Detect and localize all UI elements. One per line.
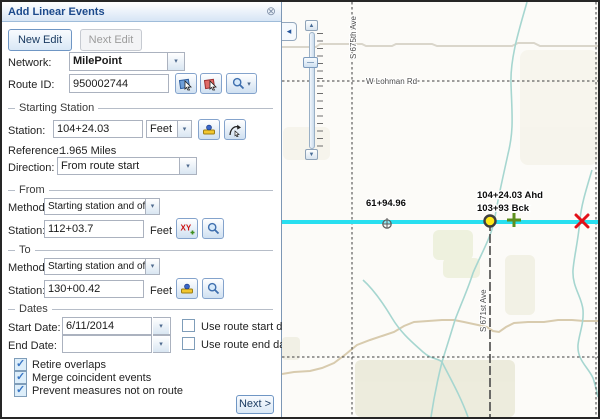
starting-station-label: Station:	[8, 125, 45, 137]
map-view[interactable]: W Lohman Rd S 675th Ave S 671st Ave 61+9…	[282, 2, 598, 417]
from-method-value: Starting station and offset	[45, 199, 145, 214]
start-date-input[interactable]	[62, 317, 152, 335]
xy-plus-icon: XY	[180, 222, 195, 236]
zoom-slider-ticks	[317, 33, 323, 148]
station-measure-label: 61+94.96	[366, 198, 406, 209]
collapse-panel-button[interactable]: ◂	[282, 22, 297, 41]
units-dropdown-trigger[interactable]: ▾	[177, 121, 191, 137]
check-icon: ✓	[16, 383, 25, 396]
from-units-label: Feet	[150, 225, 172, 237]
from-station-label: Station:	[8, 225, 45, 237]
from-legend: From	[19, 184, 45, 196]
starting-station-legend: Starting Station	[19, 102, 94, 114]
new-edit-button[interactable]: New Edit	[8, 29, 72, 51]
collapse-left-icon: ◂	[287, 27, 292, 36]
arrow-up-icon: ▲	[309, 23, 315, 29]
to-method-value: Starting station and offset	[45, 259, 145, 274]
select-route-on-map-button[interactable]	[175, 73, 197, 94]
dates-legend: Dates	[19, 303, 48, 315]
application-content: Add Linear Events ⊗ New Edit Next Edit N…	[2, 2, 598, 417]
dates-section-header: Dates	[8, 303, 273, 315]
close-icon[interactable]: ⊗	[266, 4, 276, 18]
from-xy-coordinate-button[interactable]: XY	[176, 218, 198, 239]
land-patches	[282, 50, 598, 417]
caret-down-icon: ▾	[247, 80, 251, 88]
end-date-trigger[interactable]: ▾	[153, 336, 169, 352]
station-measure-tool-button[interactable]	[198, 119, 220, 140]
from-section-header: From	[8, 184, 273, 196]
to-station-label: Station:	[8, 285, 45, 297]
direction-value: From route start	[58, 158, 179, 174]
zoom-in-button[interactable]: ▲	[305, 20, 318, 31]
to-legend: To	[19, 244, 31, 256]
network-dropdown-trigger[interactable]: ▾	[167, 53, 184, 70]
magnifier-icon	[207, 222, 220, 235]
network-value: MilePoint	[70, 53, 167, 70]
to-zoom-button[interactable]	[202, 278, 224, 299]
end-date-input[interactable]	[62, 335, 152, 353]
arrow-down-icon: ▼	[309, 152, 315, 158]
route-id-label: Route ID:	[8, 79, 54, 91]
route-zoom-menu-button[interactable]: ▾	[226, 73, 257, 94]
caret-down-icon: ▾	[174, 58, 178, 65]
to-units-label: Feet	[150, 285, 172, 297]
select-route-blue-icon	[179, 77, 193, 91]
road-label-s675: S 675th Ave	[349, 15, 358, 59]
start-date-label: Start Date:	[8, 322, 61, 334]
back-measure-label: 103+93 Bck	[477, 203, 530, 214]
pick-station-from-map-button[interactable]	[224, 119, 246, 140]
to-station-measure-tool-button[interactable]	[176, 278, 198, 299]
prevent-measures-label: Prevent measures not on route	[32, 385, 183, 397]
panel-title: Add Linear Events	[8, 6, 105, 18]
from-station-input[interactable]	[44, 220, 144, 238]
svg-text:XY: XY	[180, 223, 191, 232]
direction-dropdown-trigger[interactable]: ▾	[179, 158, 196, 174]
magnifier-icon	[207, 282, 220, 295]
caret-down-icon: ▾	[151, 203, 155, 210]
zoom-slider-track[interactable]	[309, 32, 315, 149]
to-method-combo[interactable]: Starting station and offset ▾	[44, 258, 160, 275]
add-linear-events-panel: Add Linear Events ⊗ New Edit Next Edit N…	[2, 2, 282, 417]
to-station-input[interactable]	[44, 280, 144, 298]
clear-route-selection-button[interactable]	[200, 73, 222, 94]
caret-down-icon: ▾	[159, 323, 163, 330]
network-combo[interactable]: MilePoint ▾	[69, 52, 185, 71]
magnifier-icon	[232, 77, 245, 90]
end-date-label: End Date:	[8, 340, 57, 352]
to-method-label: Method:	[8, 262, 48, 274]
check-icon: ✓	[16, 357, 25, 370]
pick-arrow-icon	[228, 123, 242, 137]
start-date-trigger[interactable]: ▾	[153, 318, 169, 334]
starting-station-input[interactable]	[53, 120, 143, 138]
merge-coincident-events-label: Merge coincident events	[32, 372, 151, 384]
selected-point-marker[interactable]	[485, 216, 496, 227]
from-method-dropdown-trigger[interactable]: ▾	[145, 199, 159, 214]
caret-down-icon: ▾	[151, 263, 155, 270]
next-button[interactable]: Next >	[236, 395, 274, 414]
ahead-measure-label: 104+24.03 Ahd	[477, 190, 543, 201]
starting-station-units-combo[interactable]: Feet ▾	[146, 120, 192, 138]
to-section-header: To	[8, 244, 273, 256]
caret-down-icon: ▾	[159, 341, 163, 348]
starting-station-section-header: Starting Station	[8, 102, 273, 114]
station-reference-marker[interactable]	[383, 218, 391, 228]
caret-down-icon: ▾	[183, 126, 187, 133]
prevent-measures-checkbox[interactable]: ✓	[14, 384, 27, 397]
use-route-end-date-label: Use route end date	[201, 339, 295, 351]
use-route-start-date-checkbox[interactable]: ✓	[182, 319, 195, 332]
map-canvas: W Lohman Rd S 675th Ave S 671st Ave 61+9…	[282, 2, 598, 417]
start-date-picker[interactable]: ▾	[153, 317, 171, 335]
direction-combo[interactable]: From route start ▾	[57, 157, 197, 175]
to-method-dropdown-trigger[interactable]: ▾	[145, 259, 159, 274]
network-label: Network:	[8, 57, 51, 69]
to-point-marker[interactable]	[507, 213, 521, 227]
from-zoom-button[interactable]	[202, 218, 224, 239]
end-date-picker[interactable]: ▾	[153, 335, 171, 353]
road-label-s671: S 671st Ave	[479, 289, 488, 332]
station-tool-icon	[202, 123, 216, 136]
minor-road	[282, 43, 598, 47]
direction-label: Direction:	[8, 162, 54, 174]
next-edit-button[interactable]: Next Edit	[80, 29, 142, 51]
use-route-end-date-checkbox[interactable]: ✓	[182, 337, 195, 350]
caret-down-icon: ▾	[186, 163, 190, 170]
zoom-slider-handle[interactable]	[303, 57, 318, 68]
zoom-out-button[interactable]: ▼	[305, 149, 318, 160]
retire-overlaps-label: Retire overlaps	[32, 359, 106, 371]
check-icon: ✓	[16, 370, 25, 383]
panel-header: Add Linear Events ⊗	[2, 2, 281, 22]
road-label-lohman: W Lohman Rd	[366, 77, 417, 86]
reference-label: Reference:	[8, 145, 62, 157]
from-method-combo[interactable]: Starting station and offset ▾	[44, 198, 160, 215]
select-route-red-icon	[204, 77, 218, 91]
application-window: Add Linear Events ⊗ New Edit Next Edit N…	[0, 0, 600, 419]
reference-value: 1.965 Miles	[60, 145, 116, 157]
route-id-input[interactable]	[69, 74, 169, 93]
station-tool-icon	[180, 282, 194, 295]
from-method-label: Method:	[8, 202, 48, 214]
starting-station-units-value: Feet	[147, 121, 177, 137]
